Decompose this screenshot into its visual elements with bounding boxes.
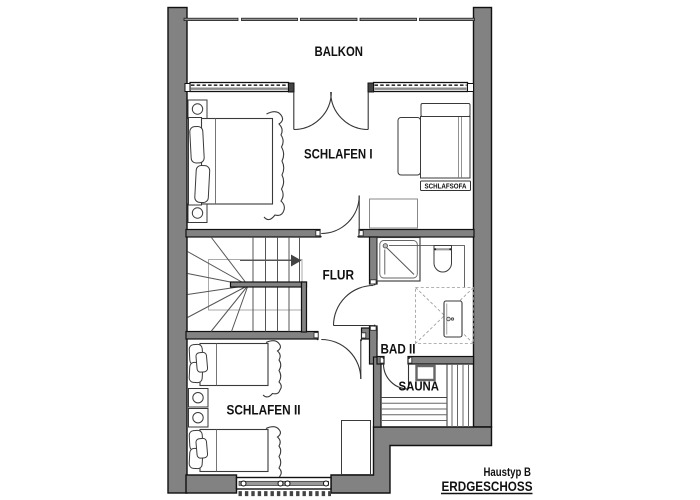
svg-text:SCHLAFEN I: SCHLAFEN I [304,147,373,162]
svg-text:BALKON: BALKON [315,44,364,59]
svg-text:ERDGESCHOSS: ERDGESCHOSS [442,478,533,494]
svg-text:SCHLAFSOFA: SCHLAFSOFA [425,181,467,190]
svg-text:FLUR: FLUR [323,268,355,283]
svg-text:SAUNA: SAUNA [399,380,440,394]
svg-text:BAD II: BAD II [381,342,416,357]
svg-text:SCHLAFEN II: SCHLAFEN II [227,403,301,418]
